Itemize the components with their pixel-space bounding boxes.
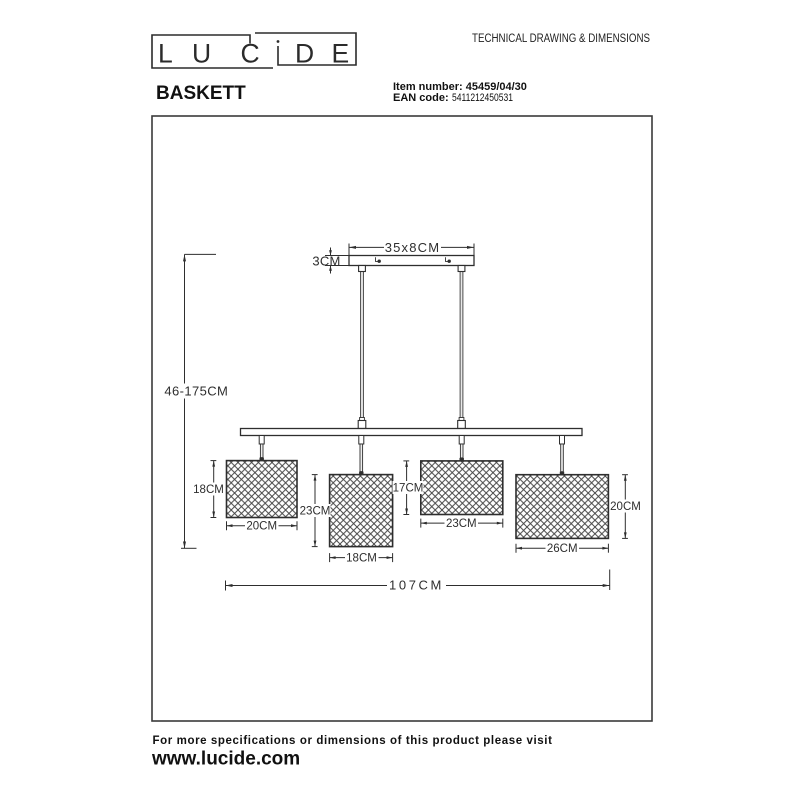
- svg-text:3CM: 3CM: [312, 254, 340, 269]
- svg-text:L: L: [158, 39, 173, 69]
- svg-text:TECHNICAL DRAWING & DIMENSIONS: TECHNICAL DRAWING & DIMENSIONS: [472, 33, 650, 45]
- svg-text:18CM: 18CM: [346, 552, 377, 564]
- svg-text:46-175CM: 46-175CM: [164, 384, 228, 399]
- svg-text:For more specifications or dim: For more specifications or dimensions of…: [153, 735, 553, 747]
- svg-text:C: C: [241, 39, 260, 69]
- svg-text:www.lucide.com: www.lucide.com: [151, 749, 300, 770]
- svg-text:26CM: 26CM: [547, 543, 578, 555]
- svg-text:BASKETT: BASKETT: [156, 83, 246, 104]
- svg-text:5411212450531: 5411212450531: [452, 92, 513, 104]
- svg-text:D: D: [295, 39, 314, 69]
- svg-text:23CM: 23CM: [300, 506, 331, 518]
- svg-text:20CM: 20CM: [610, 501, 641, 513]
- svg-text:17CM: 17CM: [393, 483, 424, 495]
- svg-text:U: U: [192, 39, 211, 69]
- svg-text:107CM: 107CM: [389, 578, 444, 593]
- svg-text:20CM: 20CM: [246, 521, 277, 533]
- svg-text:35x8CM: 35x8CM: [385, 240, 441, 255]
- svg-text:E: E: [332, 39, 350, 69]
- svg-text:23CM: 23CM: [446, 518, 477, 530]
- svg-text:EAN code:: EAN code:: [393, 92, 449, 104]
- svg-text:18CM: 18CM: [193, 484, 224, 496]
